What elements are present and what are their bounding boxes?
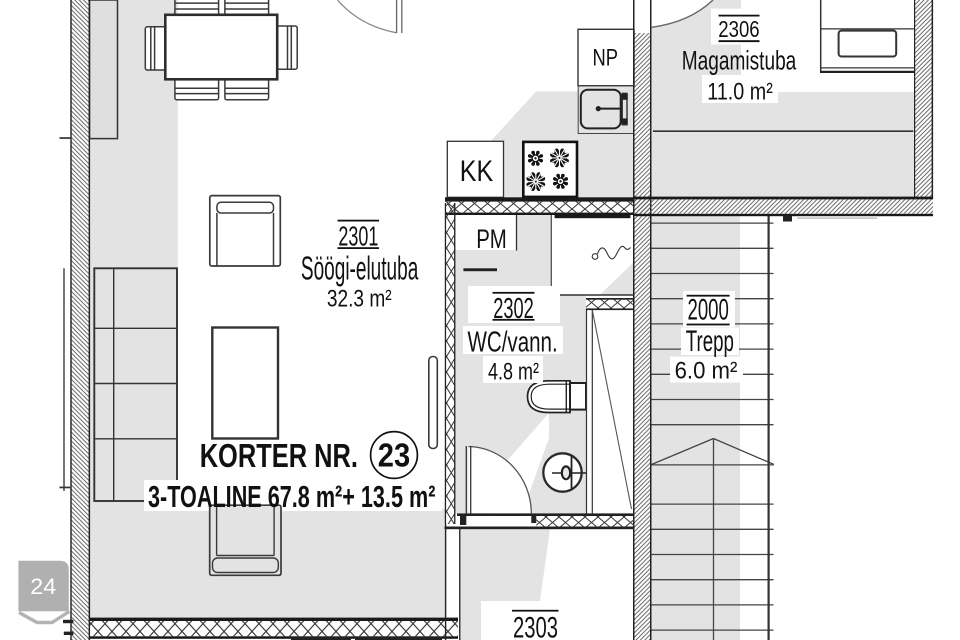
svg-text:NP: NP: [593, 44, 619, 71]
svg-text:Trepp: Trepp: [686, 325, 734, 358]
svg-text:24: 24: [30, 574, 56, 599]
svg-text:23: 23: [378, 437, 410, 474]
svg-text:11.0 m²: 11.0 m²: [707, 79, 773, 106]
svg-text:WC/vann.: WC/vann.: [468, 326, 558, 358]
svg-text:2303: 2303: [513, 612, 558, 640]
svg-text:KK: KK: [460, 155, 493, 188]
svg-text:KORTER NR.: KORTER NR.: [200, 437, 358, 474]
svg-text:32.3 m²: 32.3 m²: [327, 286, 392, 313]
svg-text:PM: PM: [476, 224, 507, 254]
svg-text:4.8 m²: 4.8 m²: [488, 358, 539, 385]
svg-text:6.0 m²: 6.0 m²: [675, 358, 738, 385]
svg-text:3-TOALINE 67.8 m²+ 13.5 m²: 3-TOALINE 67.8 m²+ 13.5 m²: [148, 480, 435, 514]
svg-text:2306: 2306: [718, 16, 759, 42]
svg-text:2000: 2000: [688, 293, 729, 326]
svg-text:Magamistuba: Magamistuba: [682, 46, 797, 76]
svg-text:Söögi-elutuba: Söögi-elutuba: [301, 250, 419, 287]
svg-text:2302: 2302: [493, 293, 534, 325]
svg-text:2301: 2301: [338, 220, 378, 251]
